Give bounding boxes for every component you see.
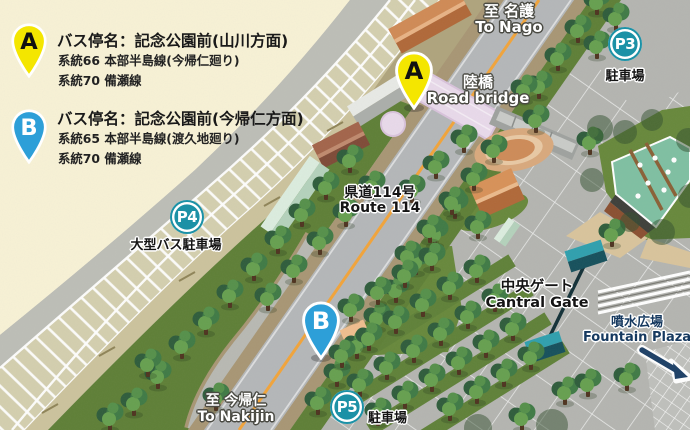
p4-code: P4 — [177, 208, 197, 226]
legend-b-title: バス停名：記念公園前(今帰仁方面) — [57, 107, 304, 129]
svg-text:A: A — [20, 29, 38, 55]
svg-text:B: B — [312, 307, 330, 335]
legend-pin-b[interactable]: B — [9, 108, 49, 168]
p5-code: P5 — [337, 398, 357, 416]
svg-text:B: B — [20, 115, 37, 141]
bus-stop-b-pin[interactable]: B — [299, 300, 343, 364]
bus-stop-a-pin[interactable]: A — [392, 50, 436, 114]
legend: A バス停名：記念公園前(山川方面) 系統66 本部半島線(今帰仁廻り) 系統7… — [0, 0, 320, 190]
legend-a-line-2: 系統70 備瀬線 — [58, 71, 142, 89]
p3-code: P3 — [615, 35, 635, 53]
legend-b-line-2: 系統70 備瀬線 — [58, 149, 142, 167]
legend-pin-a[interactable]: A — [9, 22, 49, 82]
legend-a-line-1: 系統66 本部半島線(今帰仁廻り) — [58, 51, 240, 69]
parking-badge-p3[interactable]: P3 — [608, 27, 642, 61]
parking-badge-p5[interactable]: P5 — [330, 390, 364, 424]
legend-a-title: バス停名：記念公園前(山川方面) — [57, 29, 288, 51]
parking-badge-p4[interactable]: P4 — [170, 200, 204, 234]
bus-stop-map: A バス停名：記念公園前(山川方面) 系統66 本部半島線(今帰仁廻り) 系統7… — [0, 0, 690, 430]
legend-b-line-1: 系統65 本部半島線(渡久地廻り) — [58, 129, 240, 147]
svg-text:A: A — [405, 57, 424, 85]
